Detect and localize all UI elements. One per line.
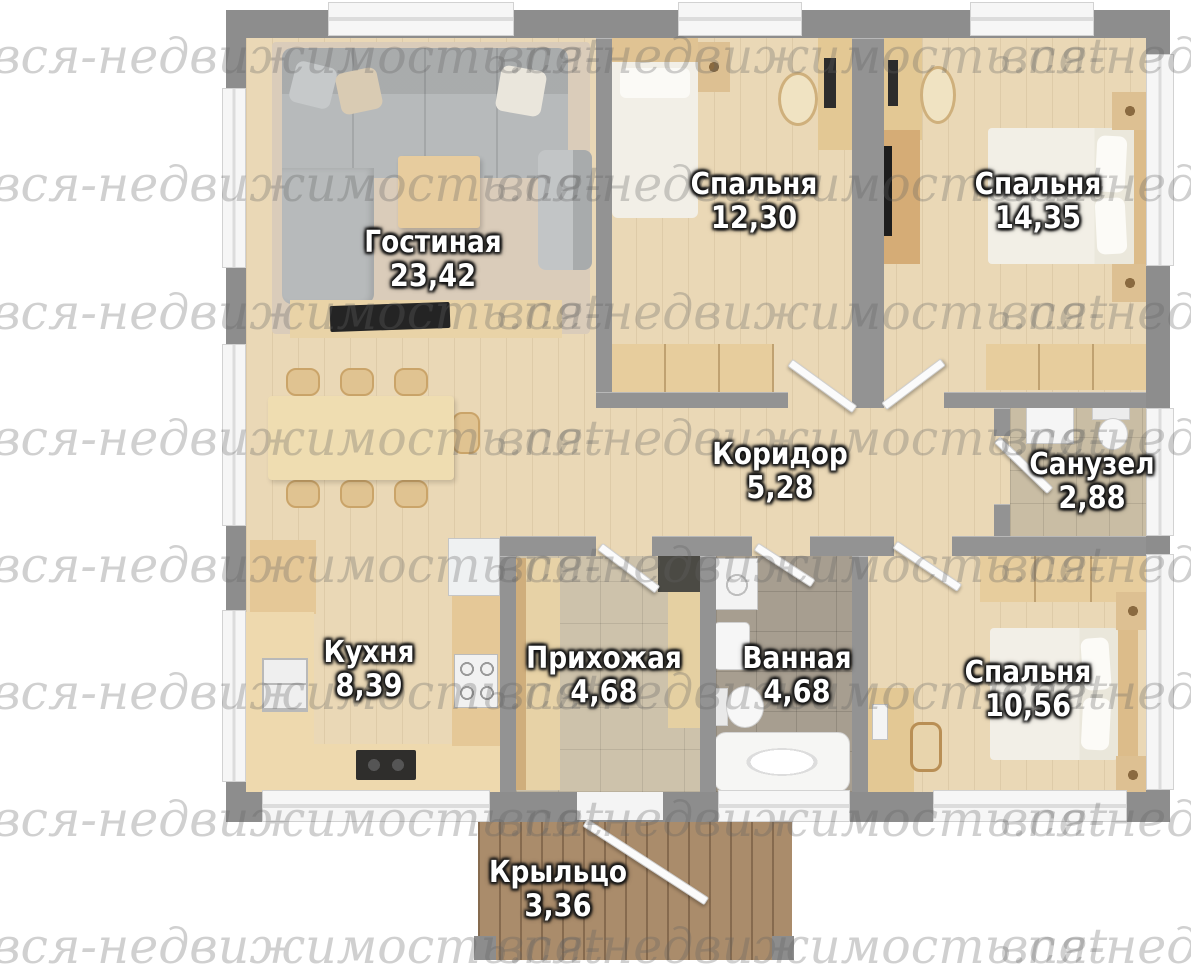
interior-wall [500,536,596,556]
nightstand [1116,756,1150,794]
window [262,790,490,822]
room-area: 14,35 [975,201,1102,235]
floor-plan-scene: вся-недвижимость.net вся-недвижимость.ne… [0,0,1191,960]
room-label-kitchen: Кухня 8,39 [323,636,414,703]
sofa-pillow [334,66,384,116]
nightstand [1112,264,1148,302]
porch-post [474,936,496,960]
room-area: 2,88 [1029,481,1154,515]
window [222,610,246,782]
dining-chair [286,368,320,396]
interior-wall [852,556,868,792]
dining-chair [286,480,320,508]
porch-post [772,936,794,960]
washing-machine [714,558,758,610]
window [222,88,246,268]
room-name: Коридор [712,438,847,471]
room-area: 10,56 [965,689,1092,723]
room-area: 8,39 [323,669,414,703]
watermark-text: вся-недвижимость.net [0,918,496,975]
kitchen-sink [262,658,308,712]
room-area: 3,36 [489,889,627,923]
interior-wall [596,392,788,408]
interior-wall [652,536,752,556]
room-label-bedroom-bottom-right: Спальня 10,56 [965,656,1092,723]
interior-wall [700,556,716,792]
window [1146,554,1174,790]
interior-wall [500,556,516,792]
kitchen-cabinet [250,540,316,614]
desk-chair [778,72,818,126]
room-area: 12,30 [691,201,818,235]
room-label-corridor: Коридор 5,28 [712,438,847,505]
dining-chair [340,480,374,508]
loveseat [538,150,592,270]
room-area: 23,42 [364,259,501,293]
interior-wall [952,536,1146,556]
room-name: Гостиная [364,226,501,259]
interior-wall [852,38,884,408]
kitchen-oven [356,750,416,780]
desk-monitor [888,60,898,106]
tv-flatscreen [330,302,451,332]
bed-pillow [620,68,690,98]
window [1146,54,1174,266]
dining-chair [340,368,374,396]
window [678,2,802,36]
interior-wall [810,536,894,556]
room-label-porch: Крыльцо 3,36 [489,856,627,923]
room-name: Санузел [1029,448,1154,481]
room-label-wc: Санузел 2,88 [1029,448,1154,515]
dining-chair [394,368,428,396]
room-label-hallway: Прихожая 4,68 [526,642,682,709]
dining-chair [452,412,480,454]
bed-headboard [1118,628,1138,760]
room-name: Кухня [323,636,414,669]
window [970,2,1094,36]
bathtub [714,732,850,792]
window [718,790,850,822]
wall-tv [884,146,892,236]
room-name: Спальня [975,168,1102,201]
dining-chair [394,480,428,508]
coffee-table [398,156,480,228]
bed-headboard [1134,126,1146,266]
bed-headboard [612,38,698,62]
dining-table [268,396,454,480]
wc-sink [1026,406,1074,444]
desk-chair [910,722,942,772]
room-label-bathroom: Ванная 4,68 [742,642,851,709]
desk-computer [872,704,888,740]
room-name: Ванная [742,642,851,675]
interior-wall [994,504,1010,536]
wc-toilet-bowl [1098,418,1128,450]
room-label-living: Гостиная 23,42 [364,226,501,293]
room-name: Спальня [965,656,1092,689]
room-area: 4,68 [742,675,851,709]
window [222,344,246,526]
nightstand [698,42,730,92]
kitchen-stove [454,654,498,708]
room-area: 5,28 [712,471,847,505]
room-name: Спальня [691,168,818,201]
sofa-chaise [282,168,374,304]
watermark-text: вся-недвижимость.net [1000,918,1191,975]
interior-wall [994,408,1010,436]
window [328,2,514,36]
window [933,790,1127,822]
sofa-pillow [494,64,547,117]
desk-chair [920,66,956,124]
refrigerator [448,538,500,596]
dresser [986,344,1146,390]
room-name: Прихожая [526,642,682,675]
room-label-bedroom-top-right: Спальня 14,35 [975,168,1102,235]
interior-wall [944,392,1146,408]
room-name: Крыльцо [489,856,627,889]
room-label-bedroom-top-middle: Спальня 12,30 [691,168,818,235]
nightstand [1116,592,1150,630]
desk-monitor [824,58,836,108]
room-area: 4,68 [526,675,682,709]
nightstand [1112,92,1148,130]
entrance-threshold [577,792,663,820]
interior-wall [596,38,612,392]
dresser [612,344,774,392]
